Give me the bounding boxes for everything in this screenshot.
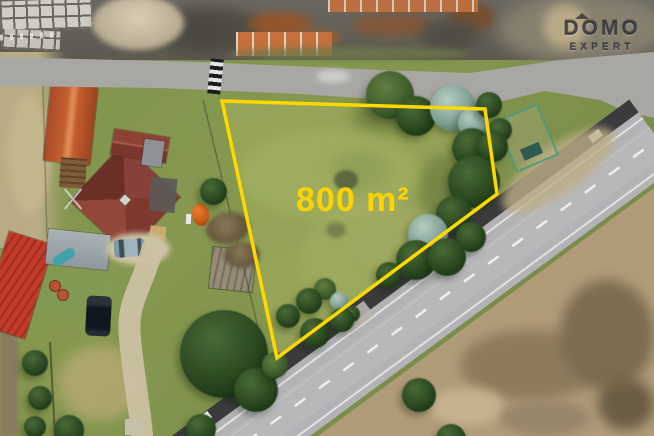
watermark-line1: DOMO	[554, 17, 650, 41]
plot-area-label: 800 m²	[296, 181, 410, 220]
plot-boundary-polygon	[222, 101, 497, 358]
aerial-photo: 800 m² DOMO EXPERT	[0, 0, 654, 436]
watermark-brand-text: DOMO	[563, 17, 640, 40]
brand-watermark: DOMO EXPERT	[554, 17, 650, 53]
watermark-line2: EXPERT	[554, 42, 650, 53]
roof-caret-icon	[575, 13, 589, 19]
